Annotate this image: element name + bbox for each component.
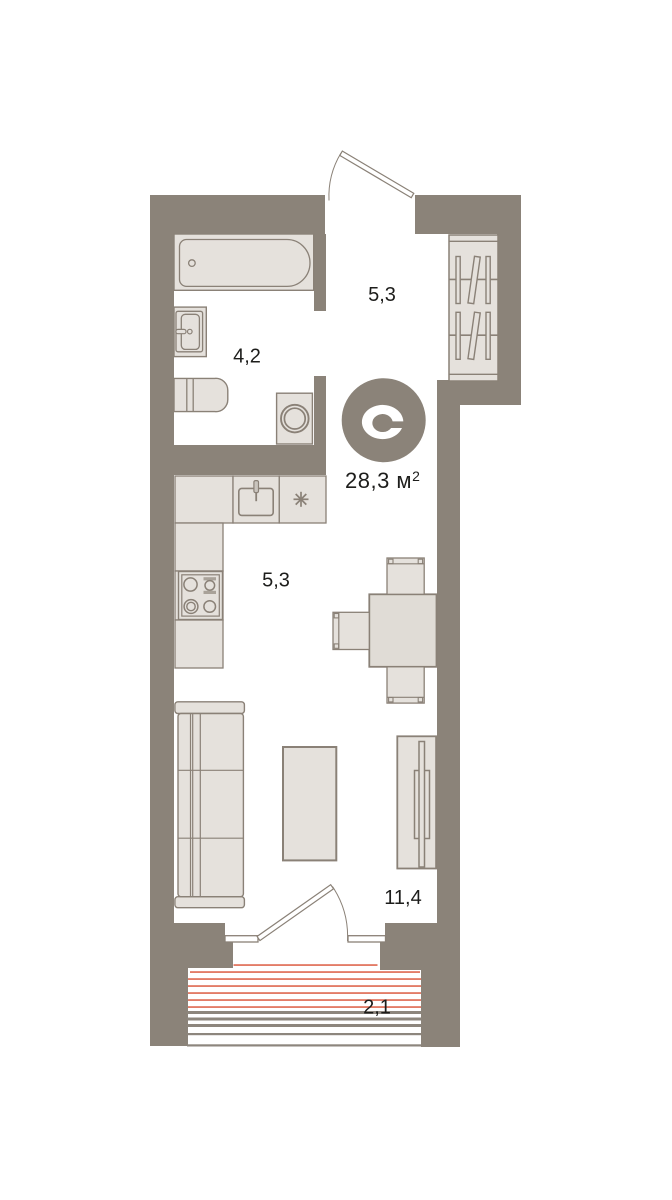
svg-text:28,3 м2: 28,3 м2	[345, 468, 420, 493]
svg-text:5,3: 5,3	[368, 284, 396, 306]
svg-text:11,4: 11,4	[384, 887, 421, 909]
svg-text:4,2: 4,2	[233, 346, 261, 368]
svg-text:5,3: 5,3	[262, 570, 290, 592]
svg-text:2,1: 2,1	[363, 997, 391, 1019]
